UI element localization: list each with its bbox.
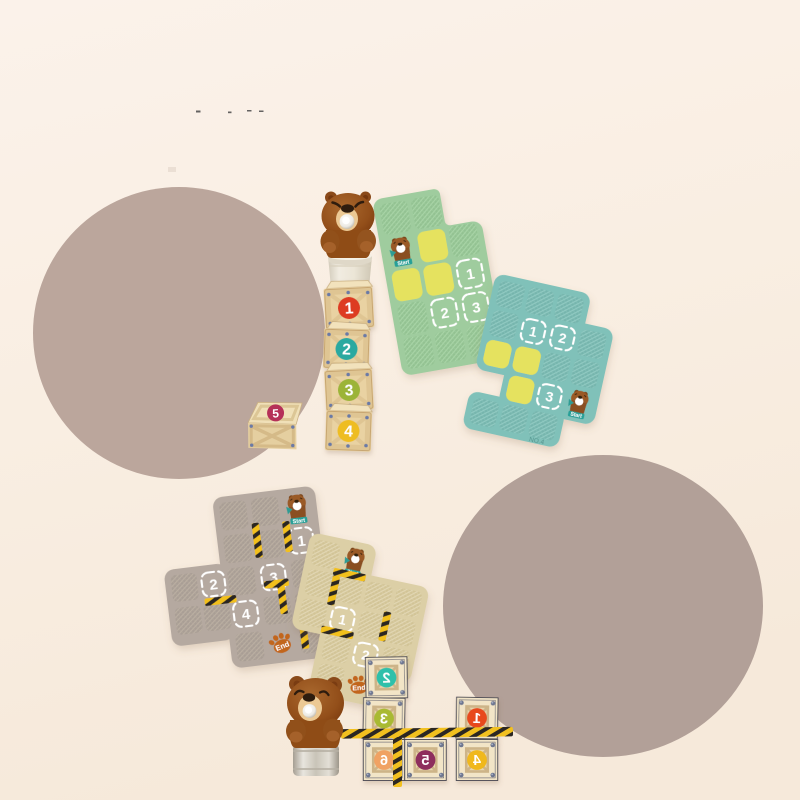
svg-text:1: 1 — [344, 300, 354, 317]
svg-text:5: 5 — [272, 406, 280, 420]
svg-text:End: End — [352, 685, 366, 693]
svg-text:4: 4 — [473, 753, 481, 769]
svg-text:2: 2 — [342, 341, 351, 358]
svg-text:3: 3 — [380, 711, 388, 727]
svg-text:6: 6 — [380, 753, 388, 769]
svg-text:2: 2 — [382, 671, 390, 687]
svg-text:1: 1 — [473, 711, 481, 727]
svg-text:5: 5 — [421, 753, 429, 769]
svg-text:3: 3 — [344, 382, 354, 399]
svg-text:4: 4 — [344, 423, 354, 440]
